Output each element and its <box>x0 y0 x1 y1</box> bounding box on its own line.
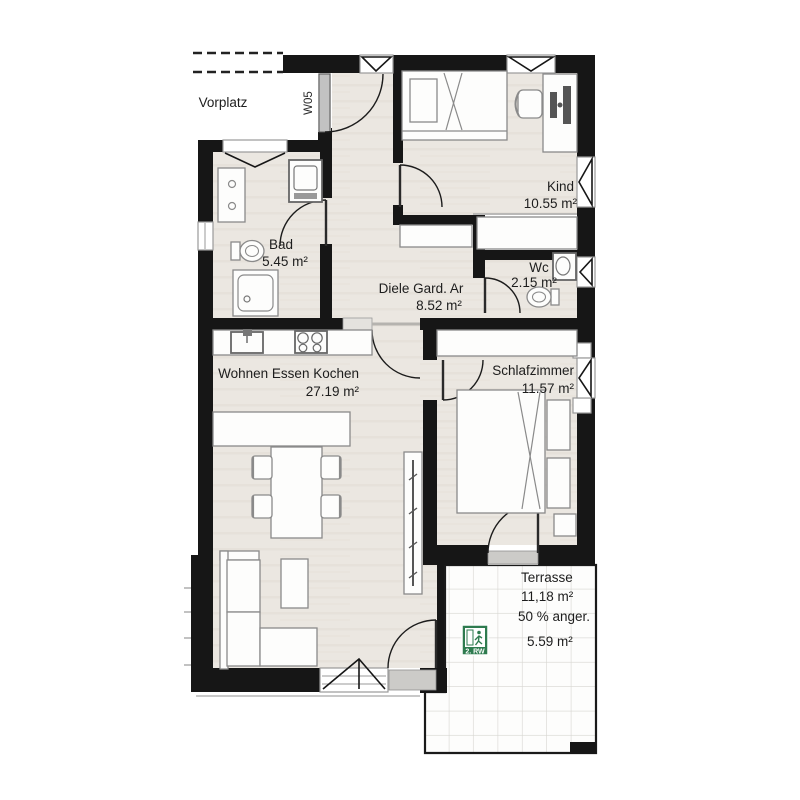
label-kind-area: 10.55 m² <box>524 196 578 211</box>
desk <box>543 74 577 152</box>
terrace-corner-pillar-2 <box>570 742 596 754</box>
vorplatz-dashed-boundary <box>193 53 283 72</box>
window-kind-right <box>577 157 595 207</box>
label-schlafzimmer-name: Schlafzimmer <box>492 363 574 378</box>
label-kind-name: Kind <box>547 179 574 194</box>
label-bad-area: 5.45 m² <box>262 254 308 269</box>
label-wc-area: 2.15 m² <box>511 275 557 290</box>
label-terrasse-name: Terrasse <box>521 570 573 585</box>
window-bad-left <box>198 222 213 250</box>
label-wohnen-area: 27.19 m² <box>306 384 360 399</box>
label-bad-name: Bad <box>269 237 293 252</box>
label-terrasse-area: 11,18 m² <box>521 589 574 604</box>
label-schlafzimmer-area: 11.57 m² <box>522 381 575 396</box>
kitchen-island <box>213 412 350 446</box>
label-terrasse-counted-area: 5.59 m² <box>527 634 573 649</box>
exit-sign-label: 2. RW <box>465 649 485 656</box>
label-wc-name: Wc <box>529 260 549 275</box>
desk-chair <box>516 90 543 118</box>
bedroom-closet <box>437 330 577 356</box>
floor-plan: 2. RW Vorplatz W05 Kind 10.55 m² Bad 5.4… <box>0 0 800 800</box>
facade-ticks <box>184 588 191 665</box>
terrace <box>420 556 596 754</box>
nightstand <box>554 514 576 536</box>
rescue-exit-sign: 2. RW <box>462 625 488 656</box>
label-diele-name: Diele Gard. Ar <box>379 281 464 296</box>
toilet-wc <box>527 287 559 307</box>
label-terrasse-note: 50 % anger. <box>518 609 590 624</box>
kind-closet <box>477 217 577 249</box>
toilet-bad <box>231 241 264 262</box>
wardrobe <box>400 225 472 247</box>
furniture-diele <box>400 225 472 247</box>
window-kind-top <box>507 55 555 73</box>
coffee-table <box>281 559 308 608</box>
label-unit-door: W05 <box>303 91 315 115</box>
stove <box>295 331 327 353</box>
washing-machine <box>289 160 322 202</box>
label-diele-area: 8.52 m² <box>416 298 462 313</box>
vanity <box>218 168 245 222</box>
kitchen-sink <box>231 329 263 353</box>
label-vorplatz: Vorplatz <box>199 95 248 110</box>
shower <box>233 270 278 316</box>
radiator <box>404 452 422 594</box>
kind-bed <box>402 71 507 140</box>
window-wc-right <box>577 257 595 287</box>
window-diele-top <box>360 55 393 73</box>
dining-table <box>271 447 322 538</box>
label-wohnen-name: Wohnen Essen Kochen <box>218 366 359 381</box>
